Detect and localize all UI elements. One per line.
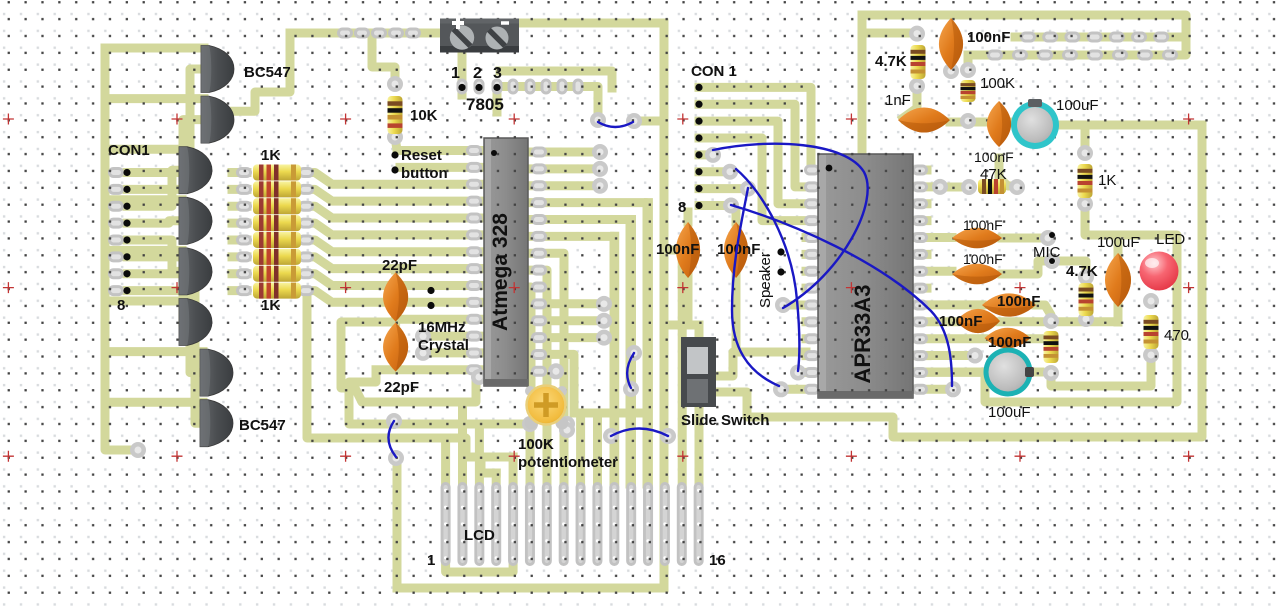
svg-text:CON1: CON1 <box>108 142 150 159</box>
svg-text:8: 8 <box>678 199 686 216</box>
svg-text:Speaker: Speaker <box>757 252 774 308</box>
svg-text:APR33A3: APR33A3 <box>850 284 875 383</box>
svg-text:16: 16 <box>709 552 726 569</box>
svg-text:4.7K: 4.7K <box>1066 263 1098 280</box>
svg-text:Crystal: Crystal <box>418 337 469 354</box>
svg-text:100uF: 100uF <box>988 404 1031 421</box>
svg-text:100nF: 100nF <box>656 241 699 258</box>
svg-text:1K: 1K <box>261 297 280 314</box>
svg-text:LED: LED <box>1156 231 1185 248</box>
svg-text:Reset: Reset <box>401 147 442 164</box>
svg-text:100K: 100K <box>980 75 1015 92</box>
svg-text:100nF: 100nF <box>963 251 1003 267</box>
svg-text:button: button <box>401 165 448 182</box>
svg-text:BC547: BC547 <box>244 64 291 81</box>
svg-text:1: 1 <box>427 552 435 569</box>
svg-text:100K: 100K <box>518 436 554 453</box>
svg-text:16MHz: 16MHz <box>418 319 466 336</box>
svg-text:2: 2 <box>473 65 482 82</box>
svg-text:1K: 1K <box>261 147 280 164</box>
svg-text:1: 1 <box>451 65 460 82</box>
svg-text:CON 1: CON 1 <box>691 63 737 80</box>
svg-text:MIC: MIC <box>1033 244 1061 261</box>
svg-text:100uF: 100uF <box>1056 97 1099 114</box>
svg-text:Slide Switch: Slide Switch <box>681 412 769 429</box>
svg-text:100nF: 100nF <box>963 217 1003 233</box>
svg-text:100nF: 100nF <box>997 293 1040 310</box>
svg-text:potentiometer: potentiometer <box>518 454 618 471</box>
svg-text:100nF: 100nF <box>967 29 1010 46</box>
svg-text:4.7K: 4.7K <box>875 53 907 70</box>
svg-text:Atmega 328: Atmega 328 <box>489 213 512 331</box>
svg-text:22pF: 22pF <box>384 379 419 396</box>
svg-text:1K: 1K <box>1098 172 1116 189</box>
svg-text:7805: 7805 <box>466 95 504 114</box>
svg-text:100nF: 100nF <box>939 313 982 330</box>
svg-text:22pF: 22pF <box>382 257 417 274</box>
svg-text:BC547: BC547 <box>239 417 286 434</box>
svg-text:470: 470 <box>1164 327 1189 344</box>
svg-text:100uF: 100uF <box>1097 234 1140 251</box>
svg-text:10K: 10K <box>410 107 438 124</box>
svg-text:1nF: 1nF <box>885 92 911 109</box>
svg-text:100nF: 100nF <box>974 149 1014 165</box>
svg-text:LCD: LCD <box>464 527 495 544</box>
svg-text:3: 3 <box>493 65 502 82</box>
svg-text:8: 8 <box>117 297 125 314</box>
